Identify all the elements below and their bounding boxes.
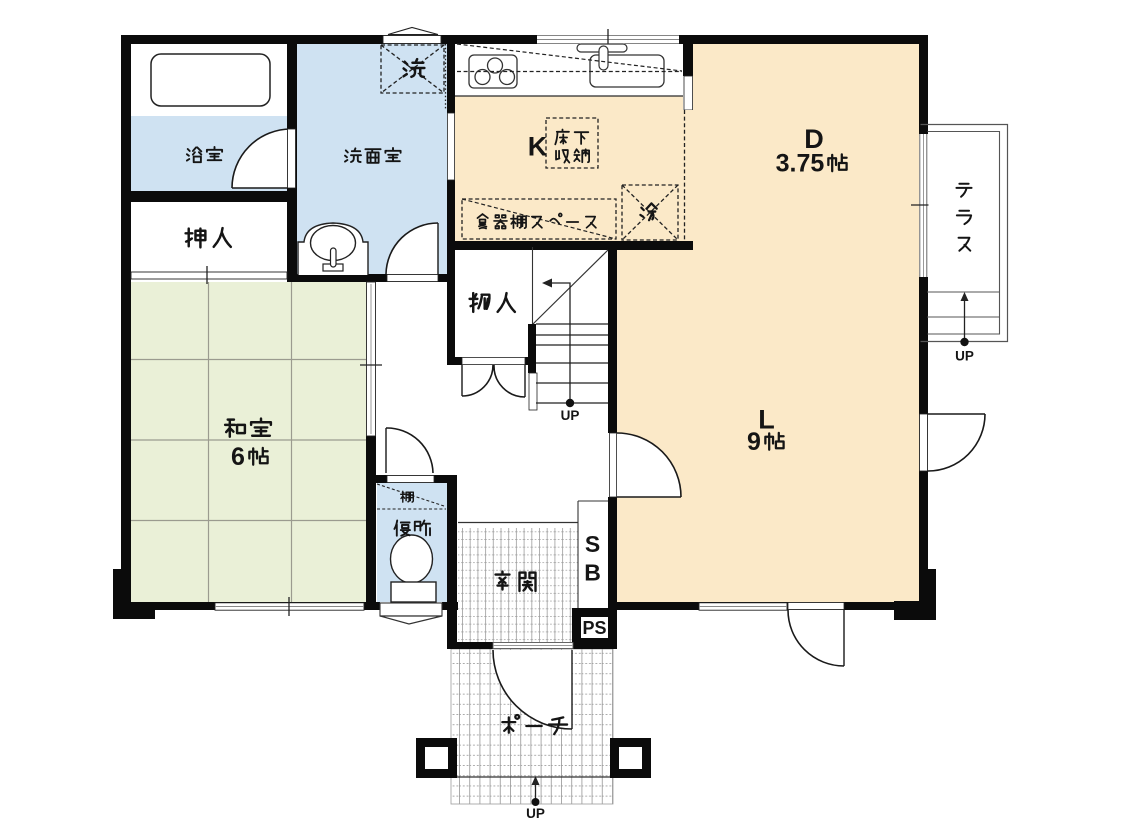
svg-text:UP: UP (955, 349, 974, 364)
svg-text:UP: UP (561, 408, 580, 423)
svg-text:UP: UP (526, 806, 545, 821)
svg-text:K: K (528, 132, 548, 162)
svg-text:PS: PS (582, 618, 606, 638)
svg-text:9: 9 (747, 428, 761, 456)
svg-text:B: B (584, 560, 601, 586)
svg-text:S: S (585, 531, 600, 557)
svg-text:3.75: 3.75 (776, 150, 825, 178)
svg-text:6: 6 (231, 443, 245, 471)
